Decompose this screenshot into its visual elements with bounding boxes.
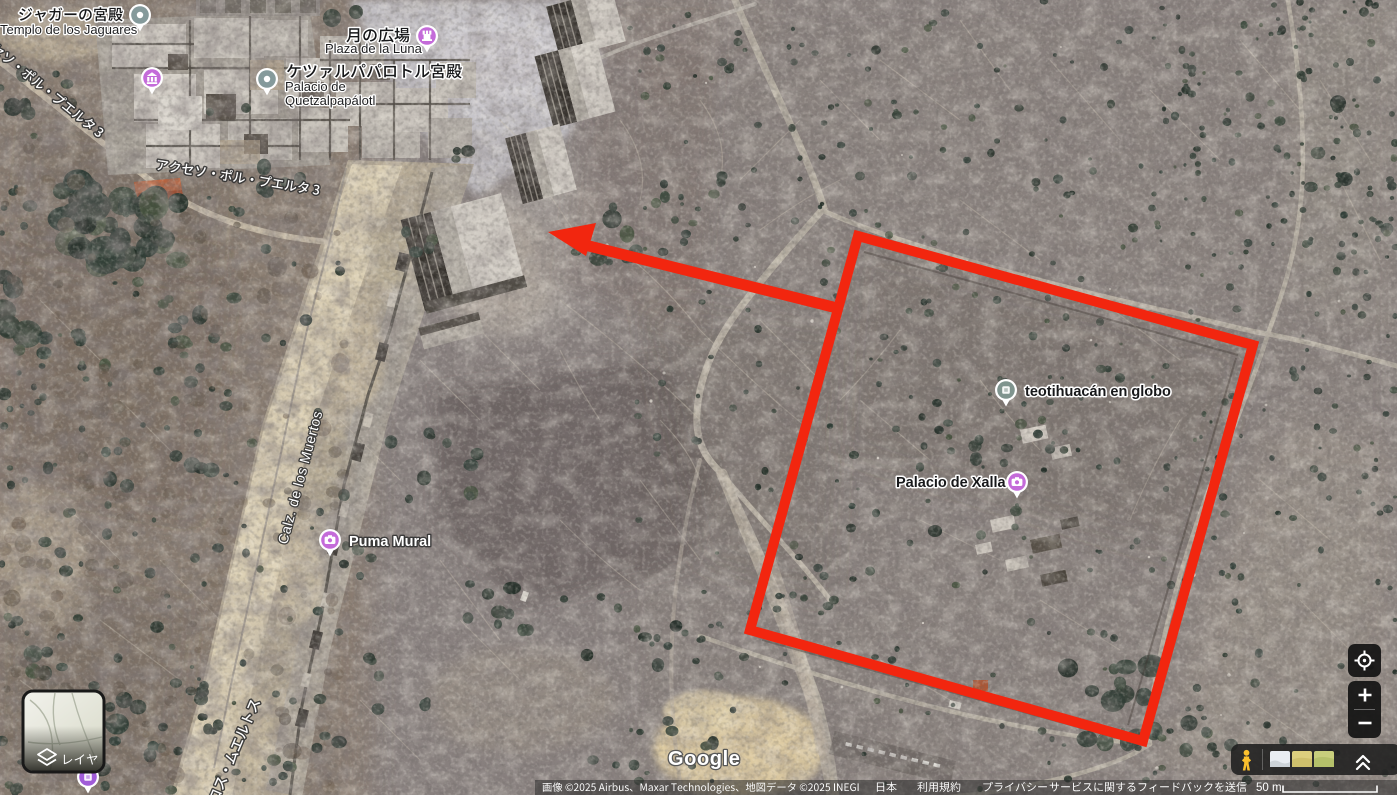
svg-text:Google: Google bbox=[668, 748, 741, 770]
svg-text:Puma Mural: Puma Mural bbox=[349, 534, 431, 550]
svg-text:50 m: 50 m bbox=[1256, 782, 1282, 794]
svg-text:Templo de los Jaguares: Templo de los Jaguares bbox=[0, 22, 138, 37]
svg-text:Palacio de: Palacio de bbox=[285, 79, 346, 94]
svg-text:teotihuacán en globo: teotihuacán en globo bbox=[1025, 384, 1171, 400]
svg-text:Quetzalpapálotl: Quetzalpapálotl bbox=[285, 93, 375, 108]
svg-text:Plaza de la Luna: Plaza de la Luna bbox=[325, 41, 423, 56]
svg-text:Palacio de Xalla: Palacio de Xalla bbox=[896, 475, 1007, 491]
